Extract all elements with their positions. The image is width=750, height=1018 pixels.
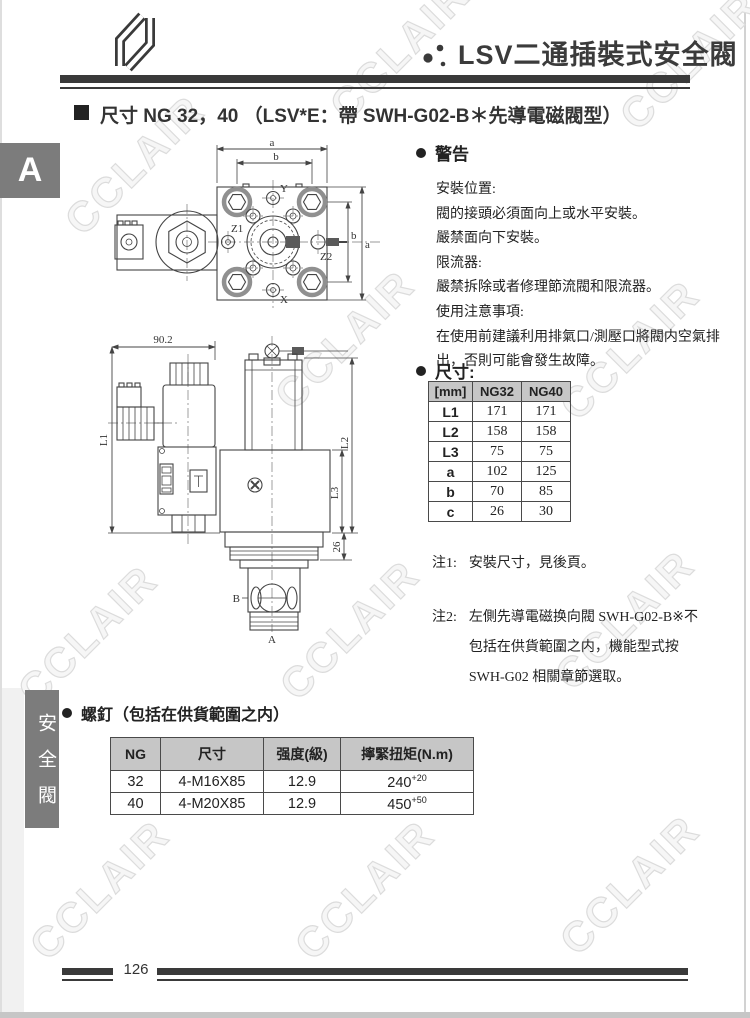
dims-value: 30 <box>522 502 571 522</box>
dims-value: 75 <box>522 442 571 462</box>
section-heading-text: 尺寸 NG 32，40 （LSV*E：帶 SWH-G02-B＊先導電磁閥型） <box>100 101 622 128</box>
note-2-line: 包括在供貨範圍之内，機能型式按 <box>469 633 698 663</box>
port-label-x: X <box>280 294 288 306</box>
screws-header-torque: 擰緊扭矩(N.m) <box>341 738 474 771</box>
footer-rule-short <box>62 968 113 975</box>
dims-header-mm: [mm] <box>429 382 473 402</box>
dot-bullet-icon <box>416 366 426 376</box>
header-rule-thin <box>60 87 690 89</box>
note-1: 注1: 安裝尺寸，見後頁。 <box>432 554 595 574</box>
warning-title: 警告 <box>435 140 469 165</box>
valve-top-view-drawing: a b b a <box>100 138 410 335</box>
dot-bullet-icon <box>416 148 426 158</box>
page-title: LSV二通插裝式安全閥 <box>458 33 738 72</box>
chapter-tab-a: A <box>0 143 60 198</box>
table-row: 40 4-M20X85 12.9 450+50 <box>111 793 474 815</box>
dims-value: 171 <box>473 402 522 422</box>
dims-header-ng40: NG40 <box>522 382 571 402</box>
screws-grade: 12.9 <box>264 793 341 815</box>
left-margin-band <box>0 688 24 1012</box>
page-edge-bottom <box>0 1012 750 1018</box>
warning-line: 嚴禁拆除或者修理節流閥和限流器。 <box>436 276 742 301</box>
dimensions-title: 尺寸: <box>435 358 475 383</box>
screws-grade: 12.9 <box>264 771 341 793</box>
dims-row-label: L3 <box>429 442 473 462</box>
port-label-z1: Z1 <box>231 223 243 235</box>
dim-label-b-right: b <box>351 230 357 242</box>
watermark: CCLAIR <box>286 811 445 970</box>
screws-title: 螺釘（包括在供貨範圍之内） <box>81 701 289 725</box>
dims-value: 102 <box>473 462 522 482</box>
dims-value: 125 <box>522 462 571 482</box>
footer-line-long <box>157 979 688 981</box>
page-edge-right <box>744 0 746 1018</box>
catalog-page: CCLAIR CCLAIR CCLAIR CCLAIR CCLAIR CCLAI… <box>0 0 750 1018</box>
table-row: 32 4-M16X85 12.9 240+20 <box>111 771 474 793</box>
screws-header-size: 尺寸 <box>161 738 264 771</box>
screws-header-ng: NG <box>111 738 161 771</box>
dims-value: 75 <box>473 442 522 462</box>
watermark: CCLAIR <box>551 806 710 965</box>
dim-label-a-right: a <box>365 239 370 251</box>
dims-row-label: b <box>429 482 473 502</box>
dims-header-ng32: NG32 <box>473 382 522 402</box>
screws-ng: 32 <box>111 771 161 793</box>
warning-section: 警告 安裝位置: 閥的接頭必須面向上或水平安裝。 嚴禁面向下安裝。 限流器: 嚴… <box>416 140 742 375</box>
table-row: L3 75 75 <box>429 442 571 462</box>
table-row: L1 171 171 <box>429 402 571 422</box>
section-heading: 尺寸 NG 32，40 （LSV*E：帶 SWH-G02-B＊先導電磁閥型） <box>74 101 714 128</box>
dim-label-a-top: a <box>270 138 275 149</box>
chapter-side-tab-safety-valve: 安全閥 <box>25 690 59 828</box>
screws-size: 4-M20X85 <box>161 793 264 815</box>
dimensions-table: [mm] NG32 NG40 L1 171 171 L2 158 158 L3 <box>428 381 571 522</box>
warning-line: 嚴禁面向下安裝。 <box>436 227 742 252</box>
note-1-text: 安裝尺寸，見後頁。 <box>469 554 595 574</box>
watermark: CCLAIR <box>21 811 180 970</box>
warning-line: 使用注意事項: <box>436 301 742 326</box>
screws-table: NG 尺寸 强度(級) 擰緊扭矩(N.m) 32 4-M16X85 12.9 2… <box>110 737 474 815</box>
screws-torque: 450+50 <box>341 793 474 815</box>
title-dots-icon <box>420 40 450 70</box>
screws-header-grade: 强度(級) <box>264 738 341 771</box>
screws-ng: 40 <box>111 793 161 815</box>
table-row: c 26 30 <box>429 502 571 522</box>
valve-side-view-drawing: 90.2 L1 L2 L3 26 <box>100 330 410 665</box>
square-bullet-icon <box>74 105 89 120</box>
warning-line: 閥的接頭必須面向上或水平安裝。 <box>436 203 742 228</box>
dim-label-l3: L3 <box>329 486 341 499</box>
table-row: L2 158 158 <box>429 422 571 442</box>
table-row: a 102 125 <box>429 462 571 482</box>
note-2: 注2: 左側先導電磁换向閥 SWH-G02-B※不 包括在供貨範圍之内，機能型式… <box>432 603 698 693</box>
port-label-a: A <box>268 634 276 646</box>
warning-line: 限流器: <box>436 252 742 277</box>
dims-value: 26 <box>473 502 522 522</box>
dim-label-26: 26 <box>331 541 343 553</box>
note-2-line: 左側先導電磁换向閥 SWH-G02-B※不 <box>469 603 698 633</box>
dot-bullet-icon <box>62 708 72 718</box>
dims-value: 158 <box>473 422 522 442</box>
warning-line: 在使用前建議利用排氣口/測壓口將閥内空氣排 <box>436 326 742 351</box>
footer-rule-long <box>157 968 688 975</box>
port-label-b: B <box>233 593 240 605</box>
dims-value: 85 <box>522 482 571 502</box>
dims-row-label: L2 <box>429 422 473 442</box>
dims-row-label: a <box>429 462 473 482</box>
dims-value: 70 <box>473 482 522 502</box>
dims-value: 158 <box>522 422 571 442</box>
note-1-label: 注1: <box>432 554 457 574</box>
port-label-y: Y <box>280 183 288 195</box>
header-rule-thick <box>60 75 690 83</box>
warning-line: 安裝位置: <box>436 178 742 203</box>
dim-label-b-top: b <box>273 151 279 163</box>
table-row: b 70 85 <box>429 482 571 502</box>
dimensions-section: 尺寸: [mm] NG32 NG40 L1 171 171 L2 158 <box>416 358 742 383</box>
note-2-label: 注2: <box>432 603 457 693</box>
dims-row-label: L1 <box>429 402 473 422</box>
note-2-line: SWH-G02 相關章節選取。 <box>469 663 698 693</box>
dims-row-label: c <box>429 502 473 522</box>
screws-section: 螺釘（包括在供貨範圍之内） NG 尺寸 强度(級) 擰緊扭矩(N.m) 32 4… <box>62 701 662 725</box>
brand-logo <box>106 10 164 74</box>
dim-label-l1: L1 <box>100 434 110 446</box>
port-label-z2: Z2 <box>320 251 332 263</box>
dims-value: 171 <box>522 402 571 422</box>
dim-label-90-2: 90.2 <box>153 334 172 346</box>
footer-line-short <box>62 979 113 981</box>
page-number: 126 <box>118 961 154 978</box>
screws-torque: 240+20 <box>341 771 474 793</box>
screws-size: 4-M16X85 <box>161 771 264 793</box>
dim-label-l2: L2 <box>339 437 351 449</box>
